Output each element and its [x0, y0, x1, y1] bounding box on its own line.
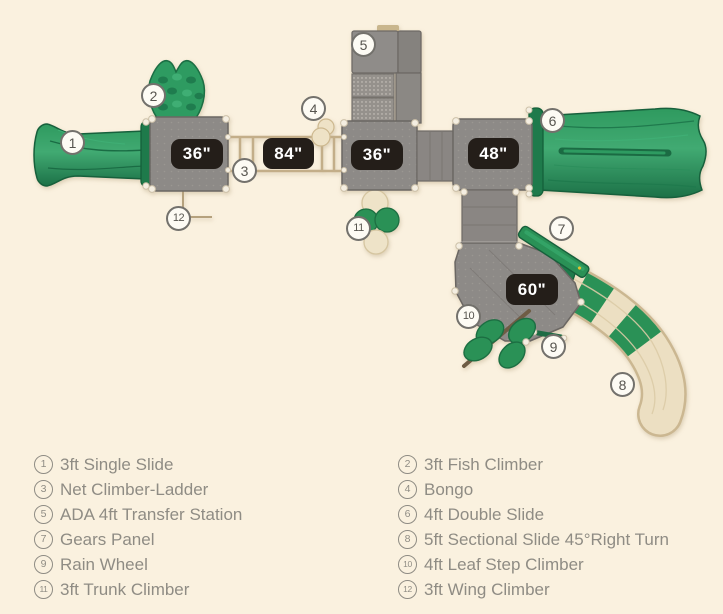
legend-item: 8 5ft Sectional Slide 45°Right Turn — [398, 527, 669, 552]
playground-plan-page: 36" 84" 36" 48" 60" 1 2 3 4 5 6 7 8 9 10… — [0, 0, 723, 614]
legend-number: 9 — [34, 555, 53, 574]
legend-number: 1 — [34, 455, 53, 474]
legend-label: 3ft Fish Climber — [424, 455, 543, 475]
legend-item: 12 3ft Wing Climber — [398, 577, 669, 602]
legend-label: 5ft Sectional Slide 45°Right Turn — [424, 530, 669, 550]
legend-item: 1 3ft Single Slide — [34, 452, 242, 477]
callout-marker-6: 6 — [540, 108, 565, 133]
callout-marker-12: 12 — [166, 206, 191, 231]
legend-number: 8 — [398, 530, 417, 549]
legend-number: 5 — [34, 505, 53, 524]
legend-label: 3ft Wing Climber — [424, 580, 550, 600]
bongo — [312, 119, 334, 146]
legend-column-left: 1 3ft Single Slide 3 Net Climber-Ladder … — [34, 452, 242, 602]
deck-height-label: 36" — [351, 140, 403, 170]
legend-number: 7 — [34, 530, 53, 549]
deck-connector — [417, 131, 455, 181]
callout-marker-9: 9 — [541, 334, 566, 359]
legend-label: ADA 4ft Transfer Station — [60, 505, 242, 525]
legend-item: 2 3ft Fish Climber — [398, 452, 669, 477]
legend-label: 3ft Trunk Climber — [60, 580, 189, 600]
callout-marker-1: 1 — [60, 130, 85, 155]
legend-label: Rain Wheel — [60, 555, 148, 575]
legend-label: 4ft Leaf Step Climber — [424, 555, 584, 575]
legend-item: 7 Gears Panel — [34, 527, 242, 552]
single-slide — [34, 121, 154, 187]
callout-marker-10: 10 — [456, 304, 481, 329]
legend-number: 3 — [34, 480, 53, 499]
callout-marker-5: 5 — [351, 32, 376, 57]
legend-item: 6 4ft Double Slide — [398, 502, 669, 527]
legend-label: Bongo — [424, 480, 473, 500]
deck-height-label: 36" — [171, 139, 223, 169]
callout-marker-8: 8 — [610, 372, 635, 397]
legend-label: Gears Panel — [60, 530, 155, 550]
legend-item: 11 3ft Trunk Climber — [34, 577, 242, 602]
legend-number: 4 — [398, 480, 417, 499]
callout-marker-4: 4 — [301, 96, 326, 121]
legend-label: 4ft Double Slide — [424, 505, 544, 525]
legend-item: 9 Rain Wheel — [34, 552, 242, 577]
deck-height-label: 48" — [468, 138, 519, 169]
deck-height-label: 60" — [506, 274, 558, 305]
legend-item: 10 4ft Leaf Step Climber — [398, 552, 669, 577]
legend-number: 6 — [398, 505, 417, 524]
legend-item: 4 Bongo — [398, 477, 669, 502]
legend-number: 11 — [34, 580, 53, 599]
deck-height-label: 84" — [263, 138, 314, 169]
legend-number: 12 — [398, 580, 417, 599]
callout-marker-7: 7 — [549, 216, 574, 241]
callout-marker-3: 3 — [232, 158, 257, 183]
legend-label: Net Climber-Ladder — [60, 480, 208, 500]
callout-marker-2: 2 — [141, 83, 166, 108]
callout-marker-11: 11 — [346, 216, 371, 241]
legend-item: 5 ADA 4ft Transfer Station — [34, 502, 242, 527]
legend-label: 3ft Single Slide — [60, 455, 173, 475]
deck-bridge — [460, 190, 519, 244]
legend-number: 2 — [398, 455, 417, 474]
legend-number: 10 — [398, 555, 417, 574]
legend-item: 3 Net Climber-Ladder — [34, 477, 242, 502]
legend-column-right: 2 3ft Fish Climber 4 Bongo 6 4ft Double … — [398, 452, 669, 602]
